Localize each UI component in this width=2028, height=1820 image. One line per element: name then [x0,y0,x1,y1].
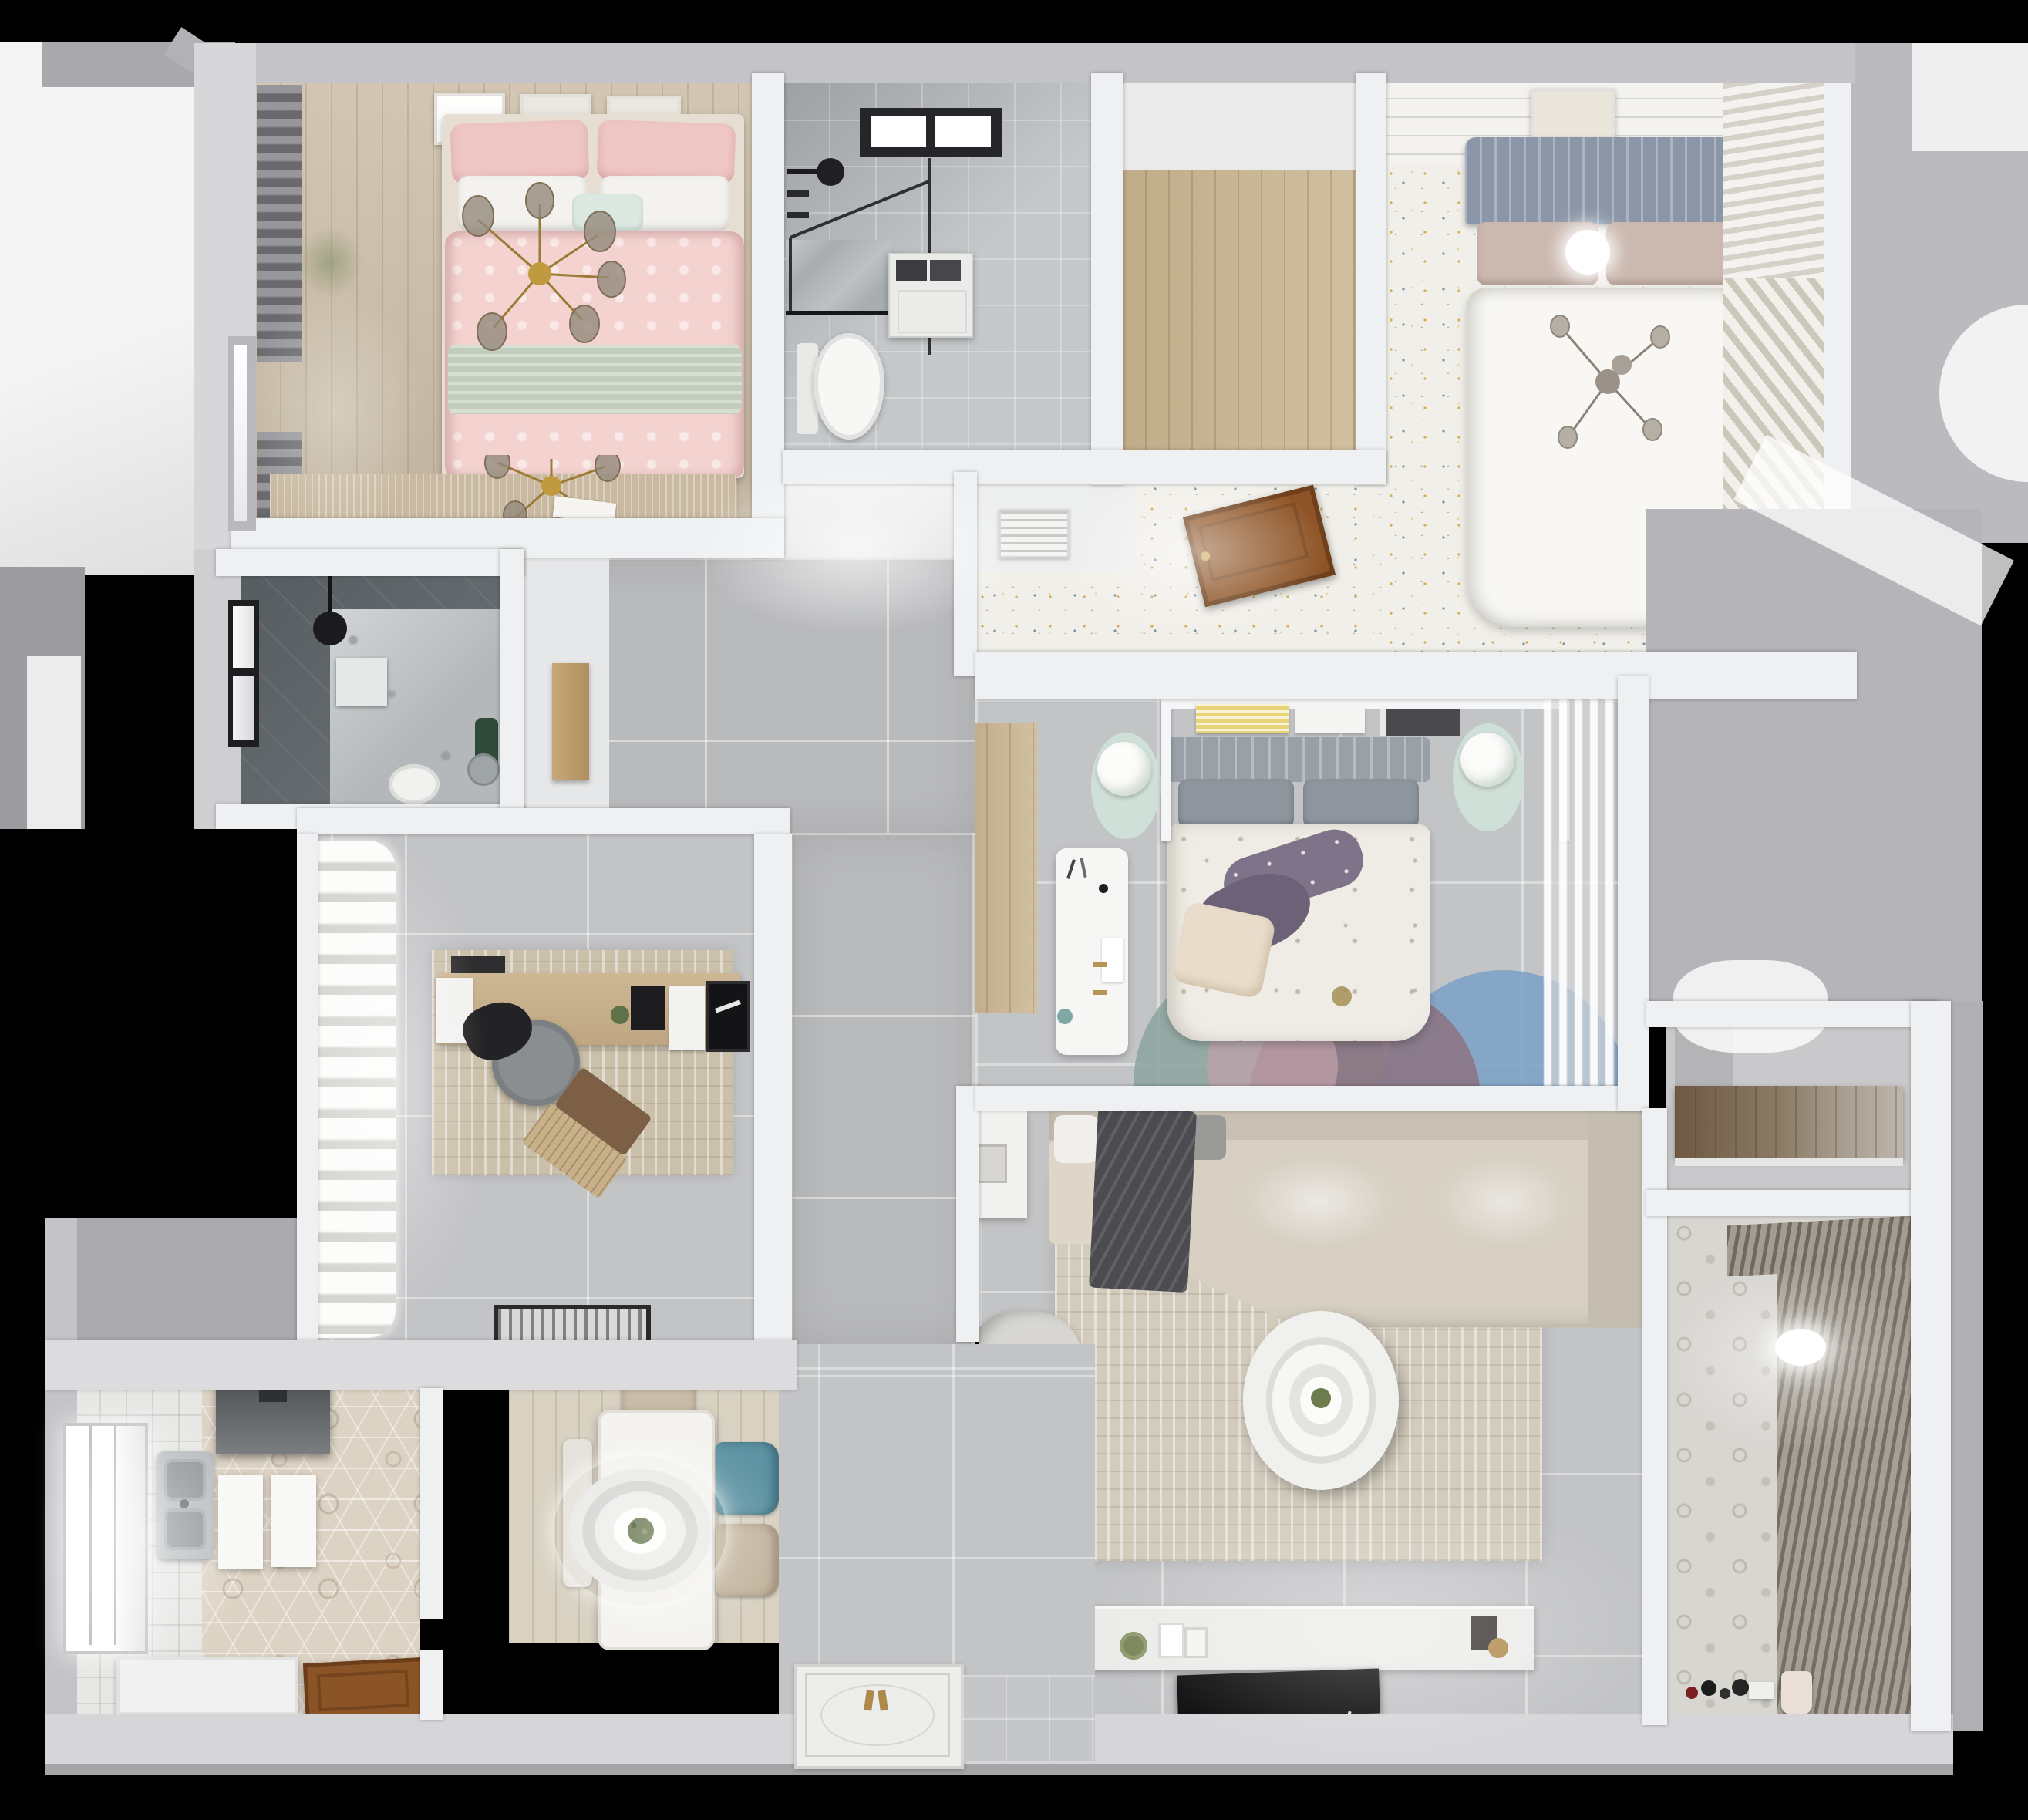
sofa-highlight [1434,1155,1573,1248]
balcony-lamp [1775,1329,1826,1366]
washer-drum [896,260,927,281]
wall-bedroom-middle-bottom [975,1086,1648,1111]
cup [1057,1009,1073,1024]
dark-bath-window [228,600,259,747]
wall-study-left [297,834,318,1343]
window-mullion [114,1426,116,1645]
toilet-dark-bath [389,764,440,804]
wall-storage-balcony [1646,1190,1938,1216]
outer-wall-bottom-lip [45,1764,1953,1775]
blinds-top-stack [1727,1216,1912,1277]
toys-cluster [1686,1676,1755,1707]
window-greenery [297,228,362,297]
tall-cabinet-wood [552,663,589,780]
room-storage [1666,1026,1912,1191]
black-art-frame [706,981,750,1052]
watering-can [1781,1671,1812,1714]
study-curtains [318,841,396,1338]
sofa-pillow-white [1054,1115,1099,1163]
white-desk [1056,848,1128,1055]
washer-drum [930,260,961,281]
pillow-gray [1178,779,1294,828]
toy [1701,1680,1716,1696]
kitchen-lower-counter [116,1657,298,1716]
counter-white [218,1475,263,1569]
washer-door-outline [898,290,967,333]
floorplan-render [0,0,2028,1820]
table-decor-frame [979,1144,1007,1183]
washing-machine [888,253,973,338]
study-doormat [494,1305,651,1342]
floor-vent-grille [999,509,1070,558]
window-pane [234,345,247,521]
wall-bedroom-main-bottom [975,652,1857,699]
pillow-pink-left [450,120,590,184]
sheer-curtain-right [1544,699,1615,1086]
outside-slab-balcony-right [1951,1001,1983,1731]
shower-tray-dark [336,658,387,706]
gold-ornament [1488,1638,1508,1658]
wall-kitchen-right-lower [420,1650,443,1720]
frame-sketch [715,999,741,1013]
table-plant [1311,1388,1331,1408]
shelf-frame-left [1161,699,1171,841]
mouse [1099,884,1108,893]
pillow-pink-right [597,120,736,184]
hall-tiles-lower [790,833,975,1344]
wall-bedroom-middle-right [1618,676,1649,1111]
sink-basin [164,1508,206,1550]
wall-hall-living [956,1086,979,1342]
desk-monitor [631,986,665,1030]
wall-darkbath-top [216,549,524,576]
wall-bath-closet [1091,73,1123,485]
wall-study-top [297,808,790,834]
range-hood [216,1380,330,1454]
gold-sprig [1332,986,1352,1006]
round-clock [1120,1632,1147,1660]
room-bathroom-dark [239,575,501,804]
blanket-dark [1089,1109,1197,1293]
book-dark [1380,709,1460,736]
room-dining [509,1388,779,1643]
side-table-white [979,1111,1027,1218]
wall-kitchen-right-upper [420,1388,443,1619]
door-panel [317,1670,409,1711]
side-table-right [1460,733,1514,787]
outside-slab-kitchen-corner [45,1218,299,1343]
white-box [1749,1682,1774,1699]
faucet [180,1499,189,1508]
shower-drop-arm [328,575,332,613]
paper [1102,938,1123,982]
books-yellow [1196,704,1289,733]
wall-bath-bottom [783,450,1386,484]
wall-balcony-right [1911,1001,1951,1731]
outside-blob-top-right [1912,43,2028,151]
book-white [1295,706,1365,733]
toy [1732,1679,1749,1696]
window-pane [871,116,926,147]
vertical-blinds [1777,1226,1912,1716]
dining-chair-teal [716,1442,779,1515]
desk-tablet [451,956,505,973]
wall-pink-bath [752,73,784,558]
coffee-table-round [1243,1311,1399,1490]
desk-plant [611,1006,629,1024]
sink-basin [164,1459,206,1501]
curtain-left [257,85,302,362]
round-mirror [467,753,500,786]
wall-kitchen-top [45,1340,797,1390]
decor-frame [1158,1623,1184,1658]
bedroom-window-frame [228,336,256,531]
plant-centerpiece [628,1518,654,1544]
pendant-lamp-rings [554,1456,726,1606]
room-study [316,833,754,1342]
counter-white [271,1475,316,1567]
window-pane [233,606,254,668]
kitchen-sink-double [157,1451,214,1559]
bed-headboard [1465,137,1743,224]
desk-shelf [669,986,705,1050]
side-table-left [1097,742,1151,796]
wardrobe-louver-upper [1723,76,1824,278]
toy [1686,1687,1698,1699]
door-panel [1198,502,1309,581]
wood-niche [975,723,1037,1013]
pen [1080,858,1086,878]
tv-flat [1177,1668,1380,1716]
window-pane [233,676,254,740]
wall-strip-left [954,472,977,676]
storage-ledge [1675,1158,1903,1166]
storage-wood-cabinet [1675,1086,1903,1158]
pen [1066,859,1076,879]
decor-frame [1184,1627,1208,1658]
pillow-gray [1303,779,1419,828]
room-entry-hall [779,1344,1095,1716]
sofa-arm-right [1588,1109,1642,1329]
tv-console [1087,1606,1534,1670]
outside-door-mid-left [27,656,81,829]
bed-headboard-gray [1167,737,1430,782]
room-bedroom-pink [254,73,752,521]
sofa-highlight [1241,1155,1396,1248]
wall-study-right [754,834,792,1343]
wall-storage-top [1646,1001,1938,1027]
branch-chandelier-icon [432,177,648,378]
toy [1720,1688,1730,1699]
window-mullion [89,1426,92,1645]
gold-handle [1093,962,1107,967]
shower-head-dark [313,612,347,645]
bed-pillow [1606,222,1730,285]
entry-floor [779,1344,1095,1716]
room-bedroom-middle [975,699,1619,1086]
kitchen-window [63,1423,148,1654]
ornate-entry-mat [794,1664,964,1769]
ceiling-lamp-disc [1565,230,1610,275]
room-balcony [1666,1215,1912,1716]
gold-handle [1093,990,1107,995]
wall-darkbath-right [500,549,524,829]
gray-entry-mat [962,1675,1095,1761]
outer-wall-top [220,43,1855,83]
wall-closet-bedroom [1356,73,1386,485]
branch-chandelier-icon [1515,297,1700,467]
